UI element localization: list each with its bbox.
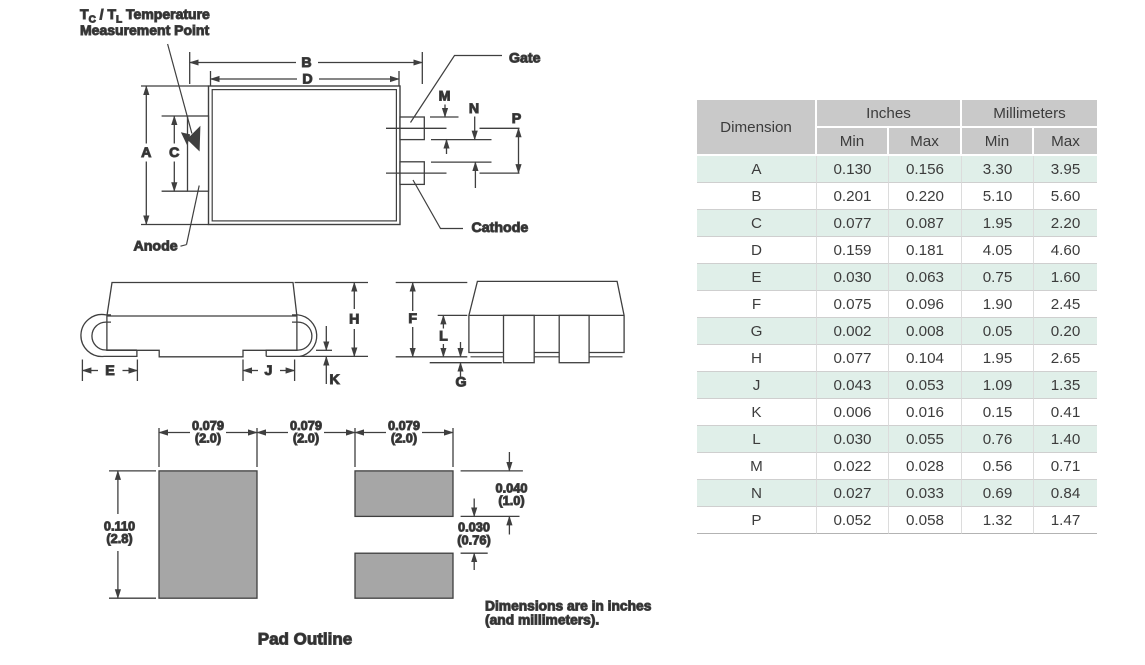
svg-text:P: P (512, 111, 521, 127)
svg-text:(2.0): (2.0) (293, 431, 319, 446)
svg-text:G: G (455, 375, 466, 391)
svg-text:(and millimeters).: (and millimeters). (485, 613, 599, 628)
svg-text:(2.8): (2.8) (106, 531, 132, 546)
svg-text:(2.0): (2.0) (391, 431, 417, 446)
svg-text:A: A (141, 145, 151, 161)
svg-text:Pad Outline: Pad Outline (258, 629, 352, 648)
svg-text:C: C (169, 145, 179, 161)
svg-text:N: N (469, 101, 479, 117)
svg-text:K: K (330, 372, 341, 388)
svg-text:L: L (439, 328, 448, 344)
svg-text:Cathode: Cathode (472, 220, 529, 236)
svg-text:Anode: Anode (134, 239, 178, 255)
svg-text:Measurement Point: Measurement Point (80, 22, 209, 38)
svg-text:Gate: Gate (509, 51, 541, 67)
svg-text:Dimensions are in inches: Dimensions are in inches (485, 599, 652, 614)
svg-text:E: E (105, 363, 114, 379)
svg-text:J: J (265, 363, 273, 379)
svg-text:H: H (349, 312, 359, 328)
svg-text:(1.0): (1.0) (498, 493, 524, 508)
svg-text:B: B (301, 55, 311, 71)
svg-text:(2.0): (2.0) (195, 431, 221, 446)
svg-text:F: F (408, 311, 417, 327)
svg-text:(0.76): (0.76) (457, 533, 490, 548)
svg-text:D: D (302, 72, 312, 88)
svg-text:M: M (439, 89, 451, 105)
